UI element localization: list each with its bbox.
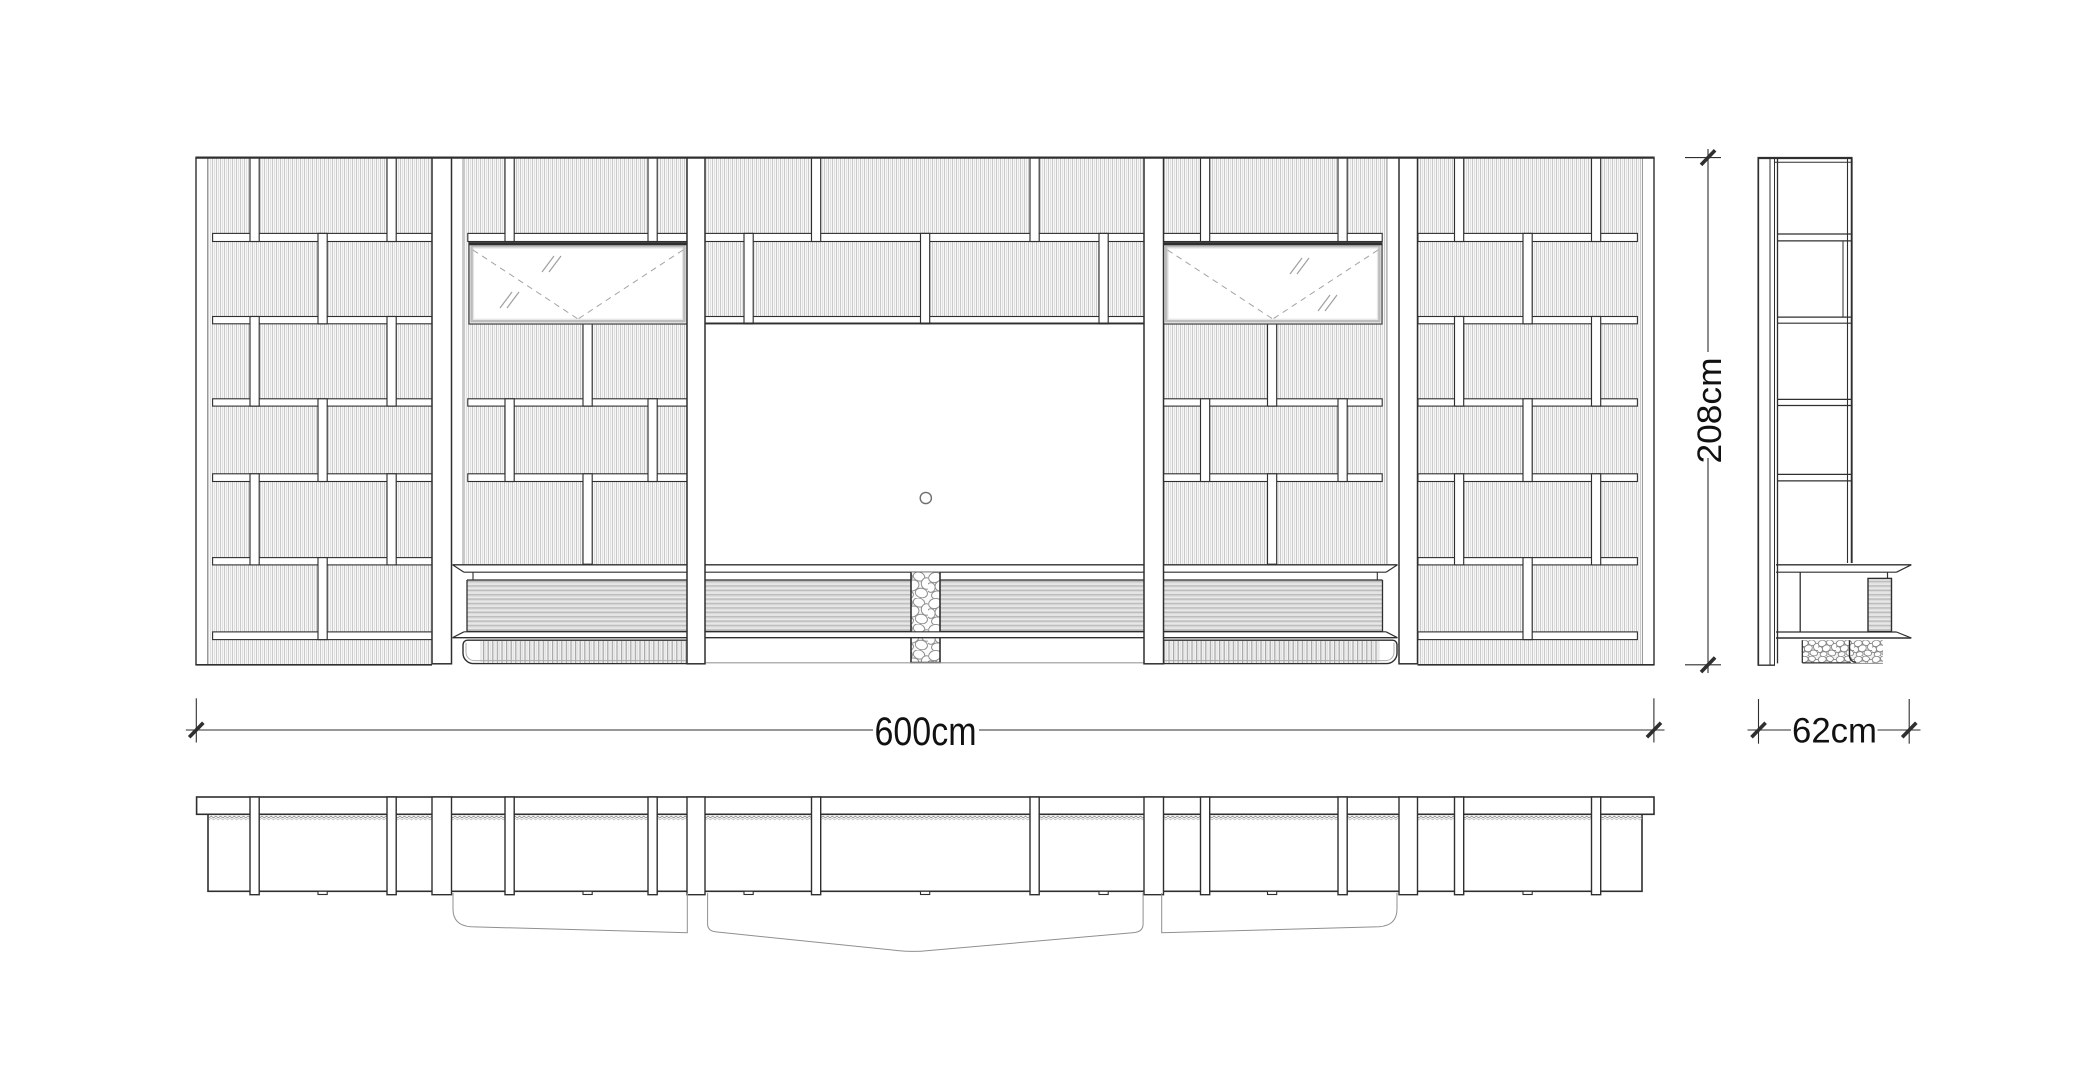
svg-text:600cm: 600cm bbox=[875, 710, 977, 754]
svg-text:208cm: 208cm bbox=[1691, 358, 1729, 464]
svg-text:62cm: 62cm bbox=[1792, 711, 1877, 751]
